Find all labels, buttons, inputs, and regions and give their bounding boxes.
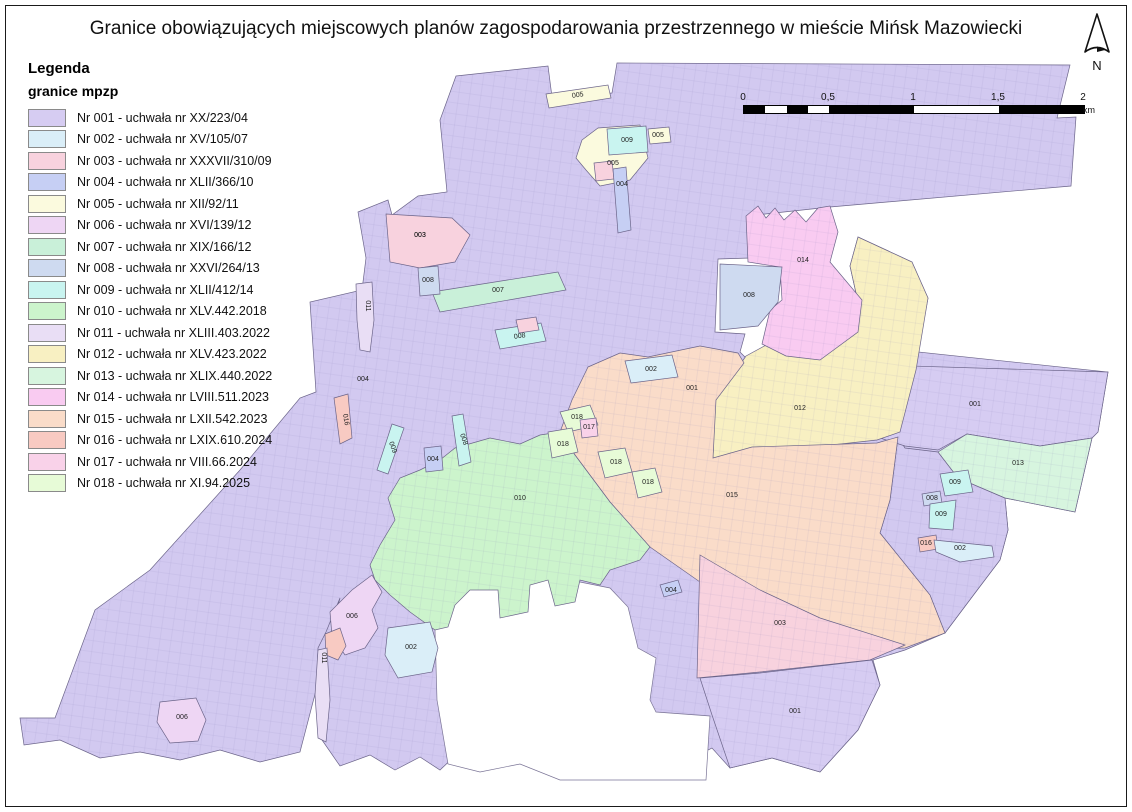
legend-swatch [28, 152, 66, 170]
legend-subheading: granice mpzp [28, 83, 308, 99]
map-region-label: 018 [571, 414, 583, 421]
scale-tick-label: 0,5 [821, 92, 835, 103]
legend-swatch [28, 195, 66, 213]
scale-bar-segment [999, 106, 1084, 113]
legend-item-009: Nr 009 - uchwała nr XLII/412/14 [28, 279, 308, 301]
map-region-label: 006 [176, 714, 188, 721]
scale-bar-segment [829, 106, 914, 113]
map-region-label: 014 [797, 257, 809, 264]
legend-swatch [28, 324, 66, 342]
legend-swatch [28, 173, 66, 191]
scale-bar-segment [744, 106, 765, 113]
legend-item-013: Nr 013 - uchwała nr XLIX.440.2022 [28, 365, 308, 387]
legend-item-label: Nr 005 - uchwała nr XII/92/11 [77, 197, 239, 211]
scale-bar-ticks: 00,511,52 [743, 92, 1089, 105]
map-sheet: Granice obowiązujących miejscowych planó… [0, 0, 1132, 812]
legend-item-label: Nr 008 - uchwała nr XXVI/264/13 [77, 261, 260, 275]
map-region-label: 003 [414, 232, 426, 239]
map-region-label: 009 [949, 479, 961, 486]
legend-heading: Legenda [28, 60, 308, 77]
scale-tick-label: 1,5 [991, 92, 1005, 103]
legend-rows: Nr 001 - uchwała nr XX/223/04Nr 002 - uc… [28, 107, 308, 494]
legend-item-label: Nr 016 - uchwała nr LXIX.610.2024 [77, 433, 272, 447]
legend-item-006: Nr 006 - uchwała nr XVI/139/12 [28, 215, 308, 237]
legend-item-012: Nr 012 - uchwała nr XLV.423.2022 [28, 344, 308, 366]
legend-item-014: Nr 014 - uchwała nr LVIII.511.2023 [28, 387, 308, 409]
map-region-label: 002 [954, 545, 966, 552]
map-region-label: 002 [405, 644, 417, 651]
legend-item-001: Nr 001 - uchwała nr XX/223/04 [28, 107, 308, 129]
legend-item-002: Nr 002 - uchwała nr XV/105/07 [28, 129, 308, 151]
legend-swatch [28, 109, 66, 127]
legend-item-016: Nr 016 - uchwała nr LXIX.610.2024 [28, 430, 308, 452]
legend-swatch [28, 259, 66, 277]
legend-item-017: Nr 017 - uchwała nr VIII.66.2024 [28, 451, 308, 473]
legend-item-label: Nr 015 - uchwała nr LXII.542.2023 [77, 412, 267, 426]
map-region-label: 004 [665, 587, 677, 594]
map-region-label: 009 [621, 137, 633, 144]
map-region-label: 011 [320, 652, 327, 663]
map-region-label: 006 [346, 613, 358, 620]
map-region-label: 015 [726, 492, 738, 499]
legend-item-label: Nr 010 - uchwała nr XLV.442.2018 [77, 304, 267, 318]
legend-item-018: Nr 018 - uchwała nr XI.94.2025 [28, 473, 308, 495]
legend-swatch [28, 410, 66, 428]
scale-bar-segment [787, 106, 808, 113]
scale-bar-segment [914, 106, 999, 113]
legend-swatch [28, 130, 66, 148]
map-region-label: 011 [364, 300, 371, 311]
legend-swatch [28, 431, 66, 449]
map-region-label: 009 [935, 511, 947, 518]
map-region-label: 018 [610, 459, 622, 466]
map-region-label: 017 [583, 424, 595, 431]
north-arrow-icon [1082, 12, 1112, 56]
legend-item-005: Nr 005 - uchwała nr XII/92/11 [28, 193, 308, 215]
scale-bar-segment [808, 106, 829, 113]
legend-swatch [28, 367, 66, 385]
scale-tick-label: 1 [910, 92, 916, 103]
map-region-label: 004 [427, 456, 439, 463]
map-region-003-sm-c [516, 317, 539, 333]
scale-unit-label: km [1083, 105, 1095, 115]
map-region-label: 003 [774, 620, 786, 627]
legend-item-010: Nr 010 - uchwała nr XLV.442.2018 [28, 301, 308, 323]
legend-item-label: Nr 011 - uchwała nr XLIII.403.2022 [77, 326, 270, 340]
scale-tick-label: 0 [740, 92, 746, 103]
legend-item-004: Nr 004 - uchwała nr XLII/366/10 [28, 172, 308, 194]
map-region-label: 013 [1012, 460, 1024, 467]
legend-item-008: Nr 008 - uchwała nr XXVI/264/13 [28, 258, 308, 280]
map-region-label: 016 [920, 540, 932, 547]
map-region-label: 001 [789, 708, 801, 715]
legend-swatch [28, 238, 66, 256]
legend: Legenda granice mpzp Nr 001 - uchwała nr… [28, 60, 308, 494]
legend-item-label: Nr 004 - uchwała nr XLII/366/10 [77, 175, 254, 189]
map-region-label: 007 [492, 287, 504, 294]
legend-swatch [28, 302, 66, 320]
north-arrow: N [1080, 12, 1114, 68]
legend-item-label: Nr 017 - uchwała nr VIII.66.2024 [77, 455, 257, 469]
map-region-label: 005 [607, 160, 619, 167]
legend-swatch [28, 453, 66, 471]
legend-item-011: Nr 011 - uchwała nr XLIII.403.2022 [28, 322, 308, 344]
legend-item-label: Nr 001 - uchwała nr XX/223/04 [77, 111, 248, 125]
legend-item-label: Nr 007 - uchwała nr XIX/166/12 [77, 240, 251, 254]
legend-swatch [28, 216, 66, 234]
map-region-label: 001 [969, 401, 981, 408]
map-region-label: 008 [743, 292, 755, 299]
map-region-label: 005 [652, 132, 664, 139]
north-label: N [1080, 58, 1114, 73]
legend-item-label: Nr 012 - uchwała nr XLV.423.2022 [77, 347, 267, 361]
map-region-label: 001 [686, 385, 698, 392]
map-region-label: 008 [422, 277, 434, 284]
map-region-label: 008 [926, 495, 938, 502]
legend-swatch [28, 281, 66, 299]
map-region-label: 004 [616, 181, 628, 188]
map-region-label: 018 [642, 479, 654, 486]
legend-item-007: Nr 007 - uchwała nr XIX/166/12 [28, 236, 308, 258]
legend-item-label: Nr 002 - uchwała nr XV/105/07 [77, 132, 248, 146]
map-region-label: 004 [357, 376, 369, 383]
legend-item-label: Nr 014 - uchwała nr LVIII.511.2023 [77, 390, 269, 404]
scale-tick-label: 2 [1080, 92, 1086, 103]
map-region-label: 018 [557, 441, 569, 448]
legend-item-label: Nr 003 - uchwała nr XXXVII/310/09 [77, 154, 272, 168]
map-region-label: 010 [514, 495, 526, 502]
scale-bar: 00,511,52 km [743, 92, 1089, 118]
legend-swatch [28, 345, 66, 363]
map-region-texture [700, 660, 880, 772]
legend-item-label: Nr 009 - uchwała nr XLII/412/14 [77, 283, 254, 297]
legend-swatch [28, 474, 66, 492]
legend-item-label: Nr 018 - uchwała nr XI.94.2025 [77, 476, 250, 490]
legend-item-label: Nr 013 - uchwała nr XLIX.440.2022 [77, 369, 272, 383]
legend-item-label: Nr 006 - uchwała nr XVI/139/12 [77, 218, 251, 232]
legend-item-003: Nr 003 - uchwała nr XXXVII/310/09 [28, 150, 308, 172]
map-region-label: 012 [794, 405, 806, 412]
legend-swatch [28, 388, 66, 406]
scale-bar-bar [743, 105, 1085, 114]
legend-item-015: Nr 015 - uchwała nr LXII.542.2023 [28, 408, 308, 430]
scale-bar-segment [765, 106, 786, 113]
map-region-label: 002 [645, 366, 657, 373]
